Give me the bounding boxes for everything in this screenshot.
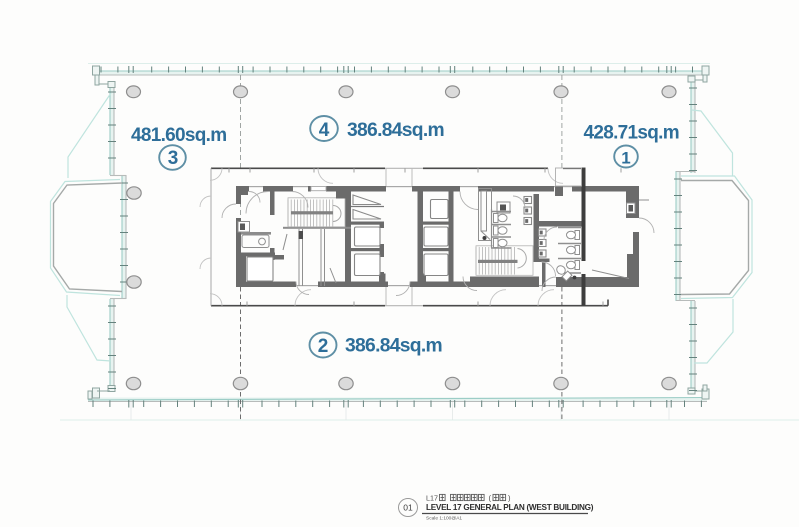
svg-text:LEVEL 17 GENERAL PLAN (WEST B: LEVEL 17 GENERAL PLAN (WEST BUILDING) xyxy=(426,503,594,512)
svg-text:3: 3 xyxy=(168,148,179,169)
svg-text:4: 4 xyxy=(319,120,330,141)
svg-text:Scale 1:100@A1: Scale 1:100@A1 xyxy=(426,516,462,522)
svg-text:386.84sq.m: 386.84sq.m xyxy=(345,336,442,357)
svg-text:01: 01 xyxy=(403,503,413,513)
svg-text:(: ( xyxy=(489,494,492,503)
svg-text:1: 1 xyxy=(621,149,630,168)
svg-text:L17: L17 xyxy=(426,494,438,503)
svg-text:2: 2 xyxy=(318,336,329,357)
svg-text:): ) xyxy=(508,494,511,503)
svg-text:386.84sq.m: 386.84sq.m xyxy=(347,120,444,141)
svg-text:481.60sq.m: 481.60sq.m xyxy=(131,125,226,146)
svg-text:428.71sq.m: 428.71sq.m xyxy=(584,123,679,144)
